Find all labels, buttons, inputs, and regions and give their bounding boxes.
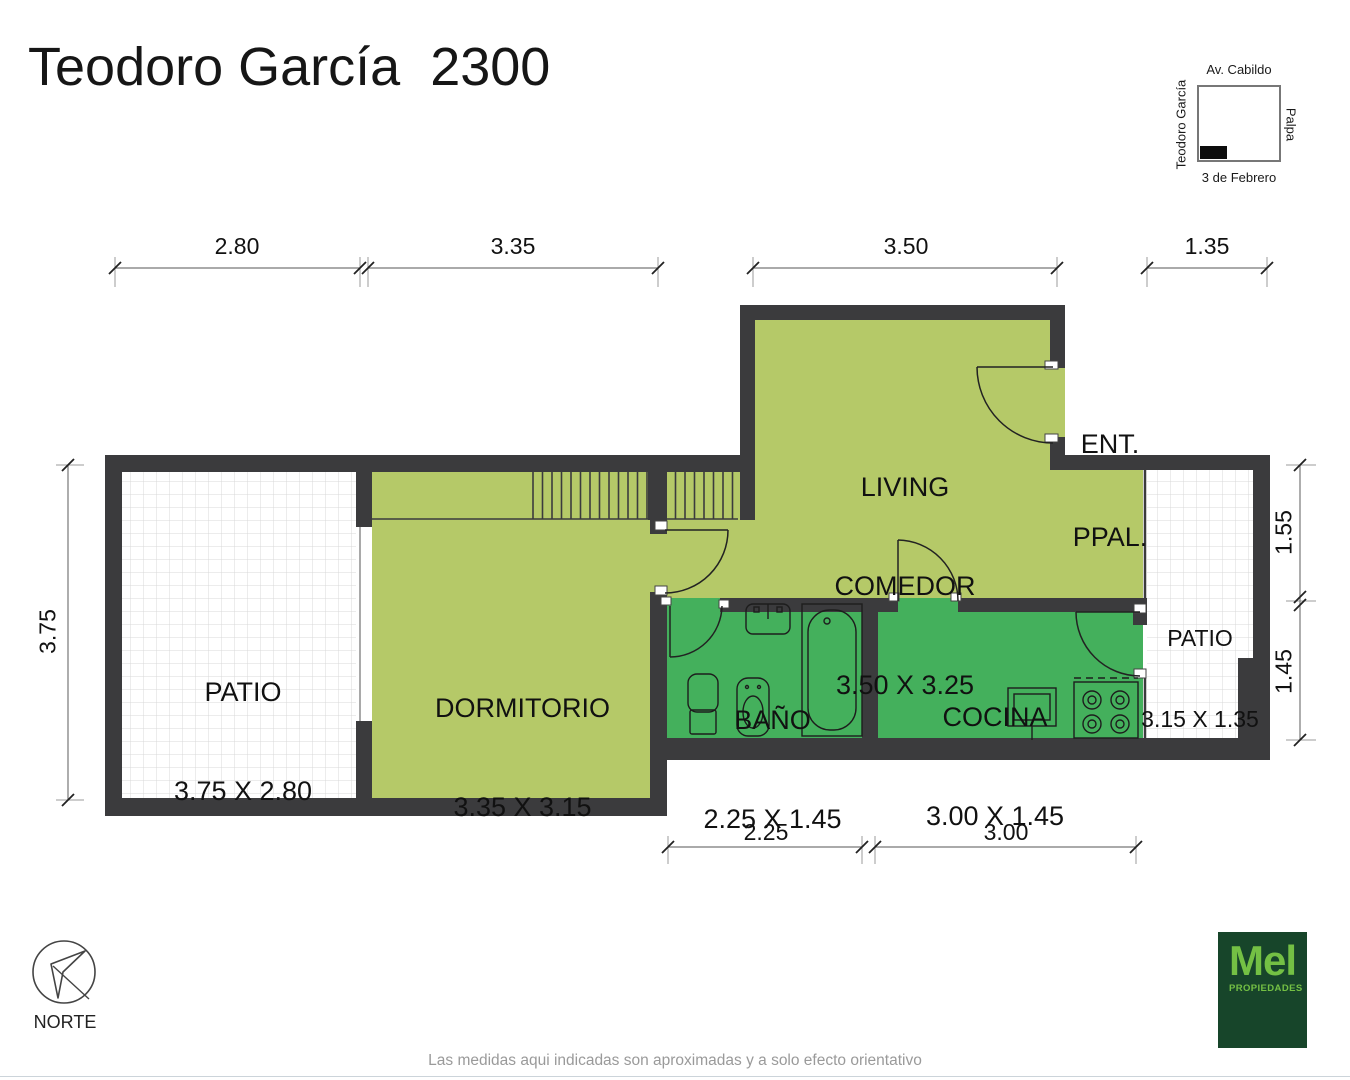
page-bottom-divider bbox=[0, 1076, 1350, 1077]
minimap-street-left: Teodoro García bbox=[1174, 65, 1189, 185]
dim-top-2: 3.35 bbox=[473, 233, 553, 260]
bano-name: BAÑO bbox=[690, 704, 855, 737]
patio-left-name: PATIO bbox=[143, 676, 343, 709]
label-dormitorio: DORMITORIO 3.35 X 3.15 bbox=[395, 626, 650, 890]
minimap-street-bottom: 3 de Febrero bbox=[1157, 170, 1321, 185]
floor-plan-page: Teodoro García 2300 Av. Cabildo Teodoro … bbox=[0, 0, 1350, 1080]
dim-top-1: 2.80 bbox=[197, 233, 277, 260]
label-cocina: COCINA 3.00 X 1.45 bbox=[910, 635, 1080, 899]
dim-left-1: 3.75 bbox=[35, 592, 62, 672]
dim-top-4: 1.35 bbox=[1167, 233, 1247, 260]
label-bano: BAÑO 2.25 X 1.45 bbox=[690, 638, 855, 902]
dormitorio-name: DORMITORIO bbox=[395, 692, 650, 725]
disclaimer-text: Las medidas aqui indicadas son aproximad… bbox=[0, 1052, 1350, 1070]
minimap-street-right: Palpa bbox=[1284, 85, 1299, 165]
agency-logo-subtitle: PROPIEDADES bbox=[1229, 983, 1307, 994]
entrance-name-2: PPAL. bbox=[1066, 522, 1154, 553]
north-compass-icon bbox=[28, 936, 100, 1008]
entrance-name-1: ENT. bbox=[1066, 429, 1154, 460]
minimap-location-marker bbox=[1200, 146, 1227, 159]
label-patio-right: PATIO 3.15 X 1.35 bbox=[1120, 571, 1280, 787]
living-name-2: COMEDOR bbox=[760, 570, 1050, 603]
patio-left-size: 3.75 X 2.80 bbox=[143, 775, 343, 808]
north-label: NORTE bbox=[24, 1012, 106, 1033]
cocina-size: 3.00 X 1.45 bbox=[910, 800, 1080, 833]
dim-right-1: 1.55 bbox=[1271, 493, 1298, 573]
page-title: Teodoro García 2300 bbox=[28, 36, 550, 98]
cocina-name: COCINA bbox=[910, 701, 1080, 734]
dormitorio-size: 3.35 X 3.15 bbox=[395, 791, 650, 824]
patio-right-size: 3.15 X 1.35 bbox=[1120, 706, 1280, 733]
label-patio-left: PATIO 3.75 X 2.80 bbox=[143, 610, 343, 874]
patio-right-name: PATIO bbox=[1120, 625, 1280, 652]
dim-top-3: 3.50 bbox=[866, 233, 946, 260]
agency-logo: Mel PROPIEDADES bbox=[1218, 932, 1307, 1048]
agency-logo-brand: Mel bbox=[1229, 940, 1307, 982]
living-name-1: LIVING bbox=[760, 471, 1050, 504]
bano-size: 2.25 X 1.45 bbox=[690, 803, 855, 836]
